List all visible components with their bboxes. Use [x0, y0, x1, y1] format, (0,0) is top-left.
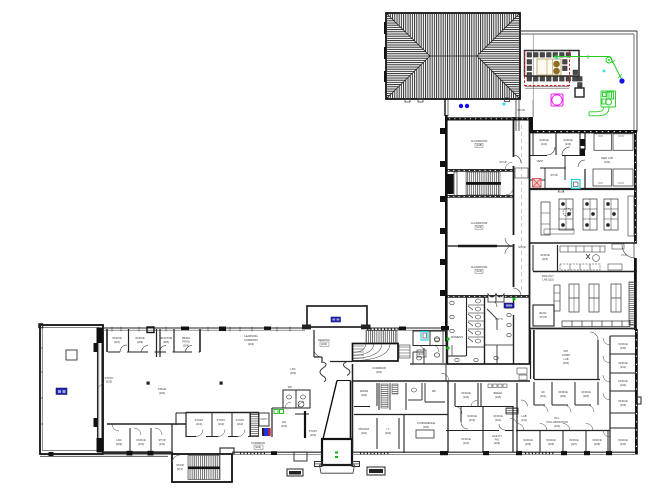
- svg-text:[126]: [126]: [476, 225, 482, 229]
- svg-text:STAIR: STAIR: [176, 463, 184, 467]
- svg-text:[206]: [206]: [137, 340, 143, 344]
- svg-text:PROD: PROD: [182, 340, 190, 344]
- svg-text:OFFICE: OFFICE: [539, 138, 549, 142]
- svg-text:PRSDNT: PRSDNT: [359, 427, 370, 431]
- svg-text:[209]: [209]: [116, 442, 122, 446]
- svg-text:[222]: [222]: [560, 394, 566, 398]
- svg-text:OFFICE: OFFICE: [618, 438, 628, 442]
- svg-text:OFFICE: OFFICE: [493, 414, 503, 418]
- svg-text:[133]: [133]: [565, 142, 571, 146]
- svg-text:VEST: VEST: [537, 159, 544, 163]
- svg-text:BLDG: BLDG: [539, 311, 546, 315]
- svg-text:CLASSROOM: CLASSROOM: [471, 265, 488, 269]
- svg-text:OFFICE: OFFICE: [136, 438, 146, 442]
- svg-text:STOR: STOR: [499, 160, 506, 164]
- svg-text:COLLABORATION: COLLABORATION: [546, 420, 568, 424]
- svg-text:OFFICE: OFFICE: [461, 437, 471, 441]
- svg-text:OFFICE: OFFICE: [618, 361, 628, 365]
- svg-text:READING: READING: [318, 338, 330, 342]
- svg-text:OFFICE: OFFICE: [569, 438, 579, 442]
- svg-text:[221]: [221]: [540, 394, 546, 398]
- svg-text:BOYS: BOYS: [495, 317, 502, 321]
- svg-text:[217]: [217]: [177, 467, 183, 471]
- svg-text:[226]: [226]: [548, 442, 554, 446]
- svg-text:[124]: [124]: [476, 269, 482, 273]
- svg-text:OFFICE: OFFICE: [618, 342, 628, 346]
- svg-text:COMP: COMP: [562, 353, 570, 357]
- svg-text:LAB: LAB: [564, 357, 569, 361]
- svg-text:[210]: [210]: [463, 441, 469, 445]
- svg-text:STUDY: STUDY: [105, 376, 114, 380]
- svg-text:STOR: STOR: [158, 438, 165, 442]
- svg-text:CLASSROOM: CLASSROOM: [471, 221, 488, 225]
- svg-text:PAL: PAL: [495, 438, 500, 442]
- svg-text:ED: ED: [282, 420, 286, 424]
- svg-text:CORRIDOR: CORRIDOR: [372, 366, 386, 370]
- svg-text:[214]: [214]: [237, 422, 243, 426]
- svg-text:[242]: [242]: [620, 383, 626, 387]
- svg-text:WOMEN'S: WOMEN'S: [451, 335, 464, 339]
- svg-text:[131]: [131]: [541, 142, 547, 146]
- svg-text:[205]: [205]: [163, 340, 169, 344]
- svg-text:[204]: [204]: [183, 343, 189, 347]
- svg-text:WC: WC: [288, 385, 292, 389]
- svg-text:[207]: [207]: [114, 340, 120, 344]
- svg-text:OFFICE: OFFICE: [592, 438, 602, 442]
- svg-text:OF: OF: [541, 390, 545, 394]
- svg-text:OFFICE: OFFICE: [546, 438, 556, 442]
- svg-text:[203]: [203]: [106, 380, 112, 384]
- svg-text:[211]: [211]: [159, 442, 165, 446]
- svg-text:OFFICE: OFFICE: [467, 414, 477, 418]
- svg-text:LEARNING: LEARNING: [244, 334, 257, 338]
- svg-text:[118]: [118]: [542, 257, 548, 261]
- svg-text:MEDIA: MEDIA: [182, 336, 190, 340]
- svg-text:STUDY: STUDY: [217, 418, 226, 422]
- svg-text:OFFICE: OFFICE: [563, 138, 573, 142]
- svg-text:[211]: [211]: [521, 418, 527, 422]
- svg-text:STOR: STOR: [539, 315, 546, 319]
- svg-text:ADMIN: ADMIN: [360, 389, 368, 393]
- svg-text:[128]: [128]: [476, 143, 482, 147]
- svg-text:[223]: [223]: [583, 394, 589, 398]
- svg-text:[201]: [201]: [248, 342, 254, 346]
- svg-text:OFFICE: OFFICE: [540, 253, 550, 257]
- svg-text:[233]: [233]: [423, 425, 429, 429]
- svg-text:LAB [115]: LAB [115]: [542, 278, 553, 282]
- svg-text:[220]: [220]: [563, 361, 569, 365]
- svg-text:I.T.: I.T.: [386, 427, 390, 431]
- svg-text:[205]: [205]: [255, 445, 261, 449]
- svg-text:BIOLOGY: BIOLOGY: [542, 274, 554, 278]
- svg-text:[130]: [130]: [604, 160, 610, 164]
- svg-text:STUDY: STUDY: [195, 418, 204, 422]
- svg-text:CORRIDOR: CORRIDOR: [251, 441, 265, 445]
- svg-text:LRC: LRC: [290, 367, 295, 371]
- svg-text:STAGE: STAGE: [158, 387, 167, 391]
- svg-text:[210]: [210]: [138, 442, 144, 446]
- svg-text:[225]: [225]: [525, 442, 531, 446]
- svg-text:[241]: [241]: [620, 365, 626, 369]
- svg-text:COPY: COPY: [260, 417, 268, 421]
- svg-text:[231]: [231]: [361, 431, 367, 435]
- svg-text:[232]: [232]: [385, 431, 391, 435]
- svg-text:STOR: STOR: [517, 108, 524, 112]
- svg-text:STOR: STOR: [550, 173, 557, 177]
- svg-text:[243]: [243]: [620, 403, 626, 407]
- svg-text:PLC: PLC: [554, 416, 559, 420]
- svg-text:OFFICE: OFFICE: [581, 390, 591, 394]
- svg-text:PAT: PAT: [564, 349, 569, 353]
- svg-text:CLASSROOM: CLASSROOM: [471, 139, 488, 143]
- svg-text:AGILITY: AGILITY: [492, 434, 502, 438]
- svg-text:[209]: [209]: [494, 441, 500, 445]
- svg-text:BLD: BLD: [418, 352, 423, 356]
- svg-text:[216]: [216]: [310, 433, 316, 437]
- svg-text:[202]: [202]: [159, 391, 165, 395]
- svg-text:WF: WF: [432, 389, 436, 393]
- svg-text:[215]: [215]: [281, 424, 287, 428]
- svg-text:[212]: [212]: [495, 418, 501, 422]
- svg-text:COMMONS: COMMONS: [244, 338, 258, 342]
- svg-text:[204]: [204]: [376, 370, 382, 374]
- svg-text:CONFERENCE: CONFERENCE: [417, 421, 435, 425]
- svg-text:OFFICE: OFFICE: [135, 336, 145, 340]
- svg-text:[230]: [230]: [361, 393, 367, 397]
- svg-text:STUDY: STUDY: [236, 418, 245, 422]
- svg-text:LAB: LAB: [522, 414, 527, 418]
- svg-text:OFFICE: OFFICE: [461, 391, 471, 395]
- svg-text:OFFICE: OFFICE: [618, 399, 628, 403]
- svg-text:[240]: [240]: [620, 346, 626, 350]
- svg-text:OFFICE: OFFICE: [523, 438, 533, 442]
- svg-text:STUDY: STUDY: [309, 429, 318, 433]
- svg-text:[203]: [203]: [321, 342, 327, 346]
- svg-text:OFFICE: OFFICE: [618, 379, 628, 383]
- svg-text:STOR: STOR: [518, 245, 525, 249]
- svg-text:RECPTOR: RECPTOR: [160, 336, 173, 340]
- svg-text:[234]: [234]: [463, 395, 469, 399]
- svg-text:[224]: [224]: [554, 424, 560, 428]
- svg-text:[212]: [212]: [196, 422, 202, 426]
- svg-text:BREAK: BREAK: [494, 391, 503, 395]
- svg-text:[244]: [244]: [620, 442, 626, 446]
- svg-text:MED LAB: MED LAB: [601, 156, 613, 160]
- svg-text:OFFICE: OFFICE: [558, 390, 568, 394]
- svg-text:LRC: LRC: [116, 438, 121, 442]
- svg-text:[227]: [227]: [571, 442, 577, 446]
- svg-text:[235]: [235]: [495, 395, 501, 399]
- svg-text:[213]: [213]: [218, 422, 224, 426]
- svg-text:FCS: FCS: [621, 253, 626, 257]
- svg-text:[228]: [228]: [594, 442, 600, 446]
- svg-text:[202]: [202]: [290, 371, 296, 375]
- svg-text:OFFICE: OFFICE: [112, 336, 122, 340]
- svg-text:[213]: [213]: [469, 418, 475, 422]
